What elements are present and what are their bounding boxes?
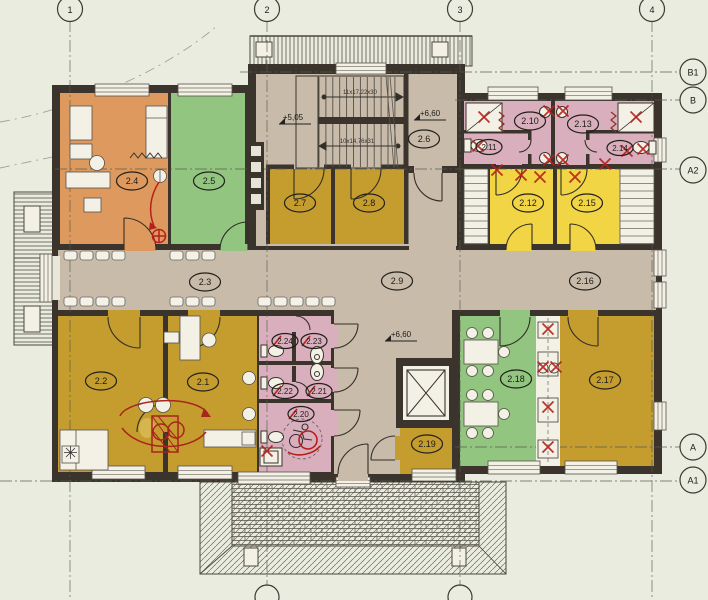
window [95, 84, 149, 96]
window [654, 402, 666, 430]
room-number: 2.13 [574, 119, 592, 129]
window [178, 84, 232, 96]
chair [186, 297, 199, 306]
chair [112, 251, 125, 260]
room-number: 2.18 [507, 374, 525, 384]
chair [80, 251, 93, 260]
svg-text:1: 1 [67, 5, 72, 15]
chair [202, 251, 215, 260]
room-2-5-area [171, 93, 245, 244]
grid-marker-4: 4 [640, 0, 665, 22]
chair [170, 251, 183, 260]
grid-marker-B1: B1 [680, 59, 706, 85]
chair [64, 251, 77, 260]
room-number: 2.4 [126, 176, 139, 186]
floor-plan-svg: 11x17,22x30 10x14,76x31 +5,05 +6,60 +6,6… [0, 0, 708, 600]
chair [186, 251, 199, 260]
chair [306, 297, 319, 306]
svg-text:A: A [690, 443, 696, 453]
grid-marker-1: 1 [58, 0, 83, 22]
room-number: 2.3 [199, 277, 212, 287]
floor-plan-drawing: 11x17,22x30 10x14,76x31 +5,05 +6,60 +6,6… [0, 0, 708, 600]
chair [202, 297, 215, 306]
corridor-area [58, 250, 656, 310]
room-number: 2.15 [578, 198, 596, 208]
level-stair: +5,05 [283, 113, 304, 122]
balcony-top [250, 36, 472, 66]
room-number: 2.1 [197, 377, 210, 387]
room-number: 2.22 [277, 387, 293, 396]
window [336, 63, 386, 74]
left-entry-door [40, 254, 60, 302]
grid-marker-A2: A2 [680, 157, 706, 183]
window [178, 466, 232, 479]
window [565, 87, 612, 100]
stair-text-upper: 11x17,22x30 [343, 90, 378, 96]
room-number: 2.8 [363, 198, 376, 208]
svg-text:A1: A1 [687, 476, 698, 486]
svg-text:3: 3 [457, 5, 462, 15]
chair [322, 297, 335, 306]
grid-marker-A: A [680, 434, 706, 460]
room-number: 2.12 [519, 198, 537, 208]
window [238, 472, 310, 484]
svg-text:A2: A2 [687, 166, 698, 176]
chair [64, 297, 77, 306]
room-number: 2.10 [521, 116, 539, 126]
room-number: 2.19 [418, 439, 436, 449]
room-number: 2.11 [482, 143, 498, 152]
level-landing: +6,60 [420, 109, 441, 118]
room-number: 2.24 [277, 337, 293, 346]
svg-text:4: 4 [649, 5, 654, 15]
window [654, 282, 666, 308]
stair-text-lower: 10x14,76x31 [340, 139, 375, 145]
chair [258, 297, 271, 306]
window [565, 461, 617, 474]
chair [80, 297, 93, 306]
room-number: 2.2 [95, 376, 108, 386]
chair [274, 297, 287, 306]
room-2-17-area [560, 316, 654, 466]
svg-text:2: 2 [264, 5, 269, 15]
window [654, 250, 666, 276]
grid-marker-A1: A1 [680, 467, 706, 493]
svg-text:B: B [690, 96, 696, 106]
room-number: 2.5 [203, 176, 216, 186]
room-number: 2.21 [311, 387, 327, 396]
chair [96, 297, 109, 306]
chair [290, 297, 303, 306]
svg-text:B1: B1 [687, 68, 698, 78]
grid-marker-B: B [680, 87, 706, 113]
chair [112, 297, 125, 306]
kitchen-strip [536, 316, 560, 466]
room-number: 2.14 [612, 144, 628, 153]
elevator-shaft [396, 358, 456, 428]
level-corridor: +6,60 [391, 330, 412, 339]
window [412, 469, 456, 481]
window [488, 87, 538, 100]
room-number: 2.7 [294, 198, 307, 208]
grid-marker-2: 2 [255, 0, 280, 22]
room-number: 2.6 [418, 134, 431, 144]
room-number: 2.20 [293, 410, 309, 419]
room-number: 2.23 [306, 337, 322, 346]
chair [170, 297, 183, 306]
duct-column [248, 142, 264, 210]
room-number: 2.9 [391, 276, 404, 286]
room-number: 2.17 [596, 375, 614, 385]
grid-marker-3: 3 [448, 0, 473, 22]
chair [96, 251, 109, 260]
window [488, 461, 540, 474]
room-number: 2.16 [576, 276, 594, 286]
